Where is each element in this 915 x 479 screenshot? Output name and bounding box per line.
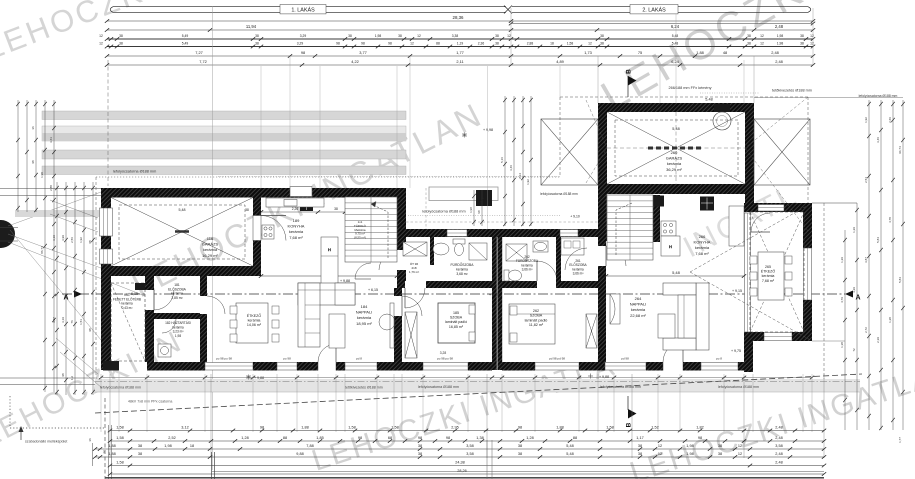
svg-text:1,28: 1,28 — [888, 317, 892, 323]
svg-text:48kV 7x8 mm PPx csatorna: 48kV 7x8 mm PPx csatorna — [128, 400, 172, 404]
svg-text:266: 266 — [699, 234, 706, 239]
svg-text:12: 12 — [588, 41, 592, 45]
svg-text:lefolyócsatorna Ø188 mm: lefolyócsatorna Ø188 mm — [113, 170, 156, 174]
svg-text:1,98: 1,98 — [777, 41, 784, 45]
svg-text:1,38: 1,38 — [476, 436, 483, 440]
svg-text:1,2: 1,2 — [70, 376, 74, 381]
svg-text:38: 38 — [495, 41, 499, 45]
svg-text:11,94: 11,94 — [246, 24, 257, 29]
svg-text:1,38: 1,38 — [840, 342, 844, 348]
svg-text:12: 12 — [410, 41, 414, 45]
svg-text:1,98: 1,98 — [686, 444, 693, 448]
svg-text:5,84: 5,84 — [876, 237, 880, 243]
svg-text:1,77: 1,77 — [898, 437, 902, 443]
svg-text:75: 75 — [638, 50, 642, 55]
svg-text:12: 12 — [658, 452, 662, 456]
svg-text:kerámia: kerámia — [631, 307, 646, 312]
svg-text:12: 12 — [658, 444, 662, 448]
svg-text:2,11: 2,11 — [456, 59, 463, 64]
svg-text:12: 12 — [738, 452, 742, 456]
svg-text:38: 38 — [800, 34, 804, 38]
svg-text:2,54: 2,54 — [864, 177, 868, 183]
svg-text:98: 98 — [260, 425, 264, 429]
svg-text:2,56: 2,56 — [70, 237, 74, 243]
svg-text:3,38: 3,38 — [452, 34, 459, 38]
svg-text:16,29 m²: 16,29 m² — [202, 253, 218, 258]
svg-text:5,48: 5,48 — [705, 98, 712, 102]
svg-text:12: 12 — [102, 450, 106, 454]
svg-text:GARÁZS: GARÁZS — [666, 156, 683, 161]
svg-text:28,26: 28,26 — [457, 469, 467, 473]
svg-text:lefolyócsatorna Ø188 mm: lefolyócsatorna Ø188 mm — [100, 386, 141, 390]
svg-text:86,74: 86,74 — [40, 246, 44, 254]
svg-text:2,95: 2,95 — [451, 425, 458, 429]
svg-text:ÉTKEZŐ: ÉTKEZŐ — [247, 313, 262, 318]
svg-text:38: 38 — [518, 444, 522, 448]
svg-text:12: 12 — [760, 41, 764, 45]
svg-text:260: 260 — [671, 150, 678, 155]
svg-text:2. LAKÁS: 2. LAKÁS — [642, 7, 666, 14]
svg-text:38: 38 — [600, 34, 604, 38]
svg-text:+ 9,88: + 9,88 — [340, 279, 350, 283]
svg-text:7,68 m²: 7,68 m² — [762, 279, 775, 283]
svg-text:B: B — [626, 69, 633, 74]
svg-text:1,58: 1,58 — [606, 425, 613, 429]
svg-text:2,72: 2,72 — [864, 327, 868, 333]
svg-text:11,82 m²: 11,82 m² — [529, 323, 544, 327]
svg-text:3,97: 3,97 — [52, 317, 56, 323]
svg-text:kerámia: kerámia — [203, 247, 218, 252]
svg-text:GARÁZS: GARÁZS — [202, 242, 219, 247]
svg-text:38: 38 — [518, 452, 522, 456]
svg-text:1,29: 1,29 — [840, 257, 844, 263]
svg-text:38: 38 — [119, 41, 123, 45]
svg-text:1,58: 1,58 — [391, 425, 398, 429]
svg-text:5,48: 5,48 — [672, 34, 679, 38]
svg-text:5,49: 5,49 — [182, 41, 189, 45]
svg-text:+ 6,15: + 6,15 — [128, 292, 138, 296]
svg-text:5,84: 5,84 — [898, 277, 902, 283]
svg-text:98: 98 — [518, 425, 522, 429]
svg-text:38: 38 — [119, 34, 123, 38]
svg-text:5,48: 5,48 — [672, 127, 679, 131]
svg-text:98: 98 — [446, 436, 450, 440]
svg-text:2,39: 2,39 — [876, 337, 880, 343]
svg-text:SZOBA: SZOBA — [450, 316, 463, 320]
svg-text:68: 68 — [388, 436, 392, 440]
svg-text:1,58: 1,58 — [116, 436, 123, 440]
svg-text:pd 8: pd 8 — [356, 357, 362, 361]
svg-text:2,48: 2,48 — [771, 50, 779, 55]
svg-text:kerámia: kerámia — [248, 319, 261, 323]
svg-text:98: 98 — [477, 210, 481, 214]
svg-text:1,98: 1,98 — [686, 452, 693, 456]
svg-text:2,36: 2,36 — [478, 41, 485, 45]
svg-text:116: 116 — [207, 236, 214, 241]
svg-text:98: 98 — [388, 41, 392, 45]
svg-text:1,73: 1,73 — [584, 50, 592, 55]
svg-text:1,52: 1,52 — [651, 425, 658, 429]
svg-text:3,12: 3,12 — [181, 425, 188, 429]
svg-text:98: 98 — [698, 436, 702, 440]
svg-text:1,58: 1,58 — [116, 460, 123, 464]
svg-text:265: 265 — [765, 265, 771, 269]
svg-text:5,16: 5,16 — [500, 157, 504, 163]
svg-text:4,78: 4,78 — [888, 217, 892, 223]
svg-text:5,48: 5,48 — [566, 452, 573, 456]
svg-text:12: 12 — [810, 41, 814, 45]
svg-text:98: 98 — [418, 436, 422, 440]
svg-text:6,24: 6,24 — [671, 24, 680, 29]
svg-text:3,77: 3,77 — [359, 50, 367, 55]
svg-text:3,87: 3,87 — [864, 257, 868, 263]
svg-text:ELŐSZOBA: ELŐSZOBA — [168, 286, 187, 291]
svg-text:16,85 m²: 16,85 m² — [449, 325, 464, 329]
svg-text:3,68 m²: 3,68 m² — [456, 272, 468, 276]
svg-text:1,98: 1,98 — [40, 172, 44, 178]
svg-text:3,29: 3,29 — [300, 34, 307, 38]
svg-text:+ 9,98: + 9,98 — [483, 128, 493, 132]
svg-text:1,98: 1,98 — [375, 34, 382, 38]
svg-text:1,19: 1,19 — [457, 41, 464, 45]
svg-text:2,48: 2,48 — [775, 460, 782, 464]
svg-text:1,92: 1,92 — [79, 237, 83, 243]
svg-text:88: 88 — [436, 41, 440, 45]
svg-text:36,29 m²: 36,29 m² — [666, 167, 682, 172]
svg-text:98: 98 — [61, 373, 65, 377]
svg-text:38: 38 — [638, 452, 642, 456]
svg-text:4,29: 4,29 — [852, 287, 856, 293]
svg-text:1,58: 1,58 — [567, 41, 574, 45]
svg-text:lefolyócsatorna Ø188 mm: lefolyócsatorna Ø188 mm — [422, 210, 465, 214]
svg-text:48: 48 — [723, 50, 727, 55]
svg-text:3,66 m²: 3,66 m² — [522, 268, 533, 272]
svg-text:36: 36 — [88, 438, 92, 442]
svg-text:1,76 m²: 1,76 m² — [409, 270, 419, 274]
svg-text:38: 38 — [418, 452, 422, 456]
svg-text:1,51: 1,51 — [79, 319, 83, 325]
svg-text:laminált padló: laminált padló — [445, 320, 467, 324]
svg-text:1,98: 1,98 — [469, 207, 473, 213]
svg-text:1,88: 1,88 — [108, 452, 115, 456]
svg-text:3,99: 3,99 — [61, 235, 65, 241]
svg-text:9,88: 9,88 — [296, 452, 303, 456]
svg-text:lefolyócsatorna Ø188 mm: lefolyócsatorna Ø188 mm — [540, 192, 578, 196]
svg-text:38: 38 — [418, 444, 422, 448]
svg-text:2,48: 2,48 — [775, 452, 782, 456]
svg-text:98: 98 — [88, 240, 92, 244]
svg-text:1,28: 1,28 — [526, 436, 533, 440]
svg-text:1. LAKÁS: 1. LAKÁS — [291, 7, 315, 14]
svg-text:FEDETT ELŐTÉRB: FEDETT ELŐTÉRB — [113, 296, 141, 301]
svg-text:3,58: 3,58 — [466, 452, 473, 456]
svg-text:A: A — [855, 295, 860, 302]
svg-text:laminált padló: laminált padló — [525, 318, 548, 322]
svg-text:98: 98 — [336, 41, 340, 45]
svg-text:1,58: 1,58 — [116, 425, 123, 429]
svg-text:98: 98 — [358, 436, 362, 440]
svg-text:98: 98 — [301, 50, 305, 55]
svg-text:38: 38 — [245, 208, 249, 212]
svg-text:262: 262 — [533, 309, 539, 313]
svg-text:+ 9,88: + 9,88 — [599, 375, 609, 379]
svg-text:38: 38 — [718, 444, 722, 448]
svg-text:12: 12 — [507, 34, 511, 38]
svg-text:1,77: 1,77 — [456, 50, 464, 55]
svg-text:1,98: 1,98 — [175, 334, 181, 338]
svg-text:kerámia: kerámia — [667, 161, 682, 166]
svg-text:38: 38 — [800, 41, 804, 45]
svg-text:38: 38 — [718, 452, 722, 456]
svg-text:2,88: 2,88 — [49, 185, 53, 191]
svg-text:kerámia: kerámia — [762, 274, 775, 278]
svg-text:7,68 m²: 7,68 m² — [289, 235, 303, 240]
svg-text:98: 98 — [88, 328, 92, 332]
svg-text:(8,55 m²): (8,55 m²) — [354, 236, 366, 240]
svg-text:po 98 po 98: po 98 po 98 — [437, 357, 453, 361]
svg-text:3,19: 3,19 — [61, 317, 65, 323]
svg-text:98: 98 — [361, 41, 365, 45]
svg-text:94,74: 94,74 — [898, 146, 902, 154]
svg-text:1,28: 1,28 — [241, 436, 248, 440]
svg-text:6,24: 6,24 — [671, 59, 679, 64]
svg-text:24,38: 24,38 — [455, 460, 465, 464]
svg-text:38: 38 — [138, 452, 142, 456]
svg-text:pd 98 pd 98: pd 98 pd 98 — [549, 357, 565, 361]
svg-text:ÉTKEZŐ: ÉTKEZŐ — [761, 269, 776, 274]
svg-text:kerámia: kerámia — [357, 315, 372, 320]
svg-text:kerámia: kerámia — [695, 245, 710, 250]
svg-text:38: 38 — [600, 41, 604, 45]
svg-text:7,27: 7,27 — [195, 50, 203, 55]
svg-text:18,95 m²: 18,95 m² — [356, 321, 372, 326]
svg-text:1,98: 1,98 — [777, 34, 784, 38]
svg-text:KONYHA: KONYHA — [694, 240, 711, 245]
svg-text:SZOBA: SZOBA — [530, 314, 543, 318]
svg-text:12: 12 — [417, 34, 421, 38]
svg-text:184: 184 — [361, 304, 368, 309]
svg-text:+ 9,75: + 9,75 — [731, 349, 741, 353]
svg-text:FÜRDŐSZOBA: FÜRDŐSZOBA — [451, 262, 475, 267]
svg-text:1,98: 1,98 — [164, 444, 171, 448]
svg-text:12: 12 — [99, 34, 103, 38]
svg-text:1,85: 1,85 — [316, 436, 323, 440]
svg-text:185: 185 — [453, 311, 459, 315]
svg-text:5,48: 5,48 — [672, 41, 679, 45]
svg-text:12: 12 — [760, 34, 764, 38]
svg-text:lefolyócsatorna Ø188 mm: lefolyócsatorna Ø188 mm — [418, 385, 459, 389]
svg-text:B: B — [626, 422, 633, 427]
svg-text:38: 38 — [747, 41, 751, 45]
svg-text:2,48: 2,48 — [775, 59, 783, 64]
svg-text:72: 72 — [852, 348, 856, 352]
svg-text:38: 38 — [138, 444, 142, 448]
svg-text:H: H — [328, 247, 331, 252]
svg-text:1,82: 1,82 — [696, 425, 703, 429]
svg-text:18: 18 — [550, 41, 554, 45]
svg-text:H: H — [669, 244, 672, 249]
svg-text:szabadonálló melléképület: szabadonálló melléképület — [25, 440, 67, 444]
svg-text:36: 36 — [31, 126, 35, 130]
svg-text:7,72: 7,72 — [199, 59, 207, 64]
svg-text:1,88: 1,88 — [696, 50, 704, 55]
svg-text:38: 38 — [495, 34, 499, 38]
svg-text:3,19: 3,19 — [52, 235, 56, 241]
svg-text:1,17: 1,17 — [636, 436, 643, 440]
svg-text:1,29: 1,29 — [852, 227, 856, 233]
svg-text:2,88: 2,88 — [527, 41, 534, 45]
svg-text:88: 88 — [573, 436, 577, 440]
svg-text:2,48: 2,48 — [775, 425, 782, 429]
svg-text:189: 189 — [293, 218, 300, 223]
svg-text:76: 76 — [70, 320, 74, 324]
svg-text:0,43 m²: 0,43 m² — [122, 306, 133, 310]
svg-text:1,58: 1,58 — [348, 425, 355, 429]
svg-text:18: 18 — [190, 444, 194, 448]
svg-text:14,06 m²: 14,06 m² — [247, 323, 262, 327]
svg-text:7,68 m²: 7,68 m² — [695, 251, 709, 256]
svg-text:pd 98: pd 98 — [621, 357, 629, 361]
svg-text:3,29: 3,29 — [297, 41, 304, 45]
svg-text:22,68 m²: 22,68 m² — [630, 313, 646, 318]
svg-text:kerámia: kerámia — [456, 267, 468, 271]
svg-text:+ 9,88: + 9,88 — [254, 376, 264, 380]
svg-text:4,22: 4,22 — [351, 59, 359, 64]
svg-text:38: 38 — [398, 34, 402, 38]
svg-text:38: 38 — [255, 41, 259, 45]
svg-text:98: 98 — [31, 160, 35, 164]
svg-text:+ 9,15: + 9,15 — [732, 289, 742, 293]
svg-text:+ 6,15: + 6,15 — [368, 288, 378, 292]
svg-text:3,46: 3,46 — [509, 165, 513, 171]
svg-text:38: 38 — [255, 34, 259, 38]
svg-text:264: 264 — [635, 296, 642, 301]
svg-text:3,46: 3,46 — [876, 137, 880, 143]
svg-text:4,89: 4,89 — [556, 59, 564, 64]
svg-text:NAPPALI: NAPPALI — [356, 310, 373, 315]
svg-text:5,49: 5,49 — [182, 34, 189, 38]
svg-text:+ 6,15: + 6,15 — [489, 293, 499, 297]
svg-text:5,48: 5,48 — [566, 444, 573, 448]
svg-text:38: 38 — [348, 34, 352, 38]
svg-text:12: 12 — [810, 34, 814, 38]
svg-text:po 8: po 8 — [716, 357, 722, 361]
svg-text:po 98 po 98: po 98 po 98 — [216, 357, 232, 361]
svg-text:3,58: 3,58 — [466, 444, 473, 448]
svg-text:kerámia: kerámia — [289, 229, 304, 234]
svg-text:1,92: 1,92 — [864, 117, 868, 123]
svg-text:88: 88 — [283, 436, 287, 440]
svg-text:2,14: 2,14 — [518, 173, 522, 179]
svg-text:38: 38 — [747, 34, 751, 38]
svg-text:266/188 mm FFx kémény: 266/188 mm FFx kémény — [668, 86, 711, 90]
svg-text:12: 12 — [99, 41, 103, 45]
svg-text:po 98: po 98 — [283, 357, 291, 361]
svg-text:2,48: 2,48 — [775, 436, 782, 440]
svg-text:38: 38 — [638, 444, 642, 448]
svg-text:1,88: 1,88 — [108, 444, 115, 448]
svg-text:3,66 m²: 3,66 m² — [573, 272, 584, 276]
svg-text:3,58: 3,58 — [775, 444, 782, 448]
svg-text:7,88: 7,88 — [306, 444, 313, 448]
svg-text:2,66: 2,66 — [888, 117, 892, 123]
svg-text:2,52: 2,52 — [168, 436, 175, 440]
svg-text:4,79: 4,79 — [840, 297, 844, 303]
svg-text:28,36: 28,36 — [453, 15, 465, 20]
svg-text:38: 38 — [334, 207, 338, 211]
svg-text:3,28: 3,28 — [440, 351, 447, 355]
svg-text:1,88: 1,88 — [301, 425, 308, 429]
svg-text:12: 12 — [738, 444, 742, 448]
svg-text:5,48: 5,48 — [179, 208, 186, 212]
svg-text:NAPPALI: NAPPALI — [630, 302, 647, 307]
svg-text:1,88: 1,88 — [556, 425, 563, 429]
svg-text:2,48: 2,48 — [775, 24, 784, 29]
svg-text:+ 9,10: + 9,10 — [570, 215, 580, 219]
svg-text:5,48: 5,48 — [672, 270, 681, 275]
svg-text:KONYHA: KONYHA — [288, 224, 305, 229]
svg-text:3,61: 3,61 — [49, 137, 53, 143]
svg-text:1,92: 1,92 — [526, 179, 530, 185]
svg-text:2,85 m²: 2,85 m² — [171, 296, 183, 300]
svg-text:2,26: 2,26 — [292, 207, 299, 211]
svg-text:tetőkivezetés Ø188 mm: tetőkivezetés Ø188 mm — [772, 89, 812, 93]
